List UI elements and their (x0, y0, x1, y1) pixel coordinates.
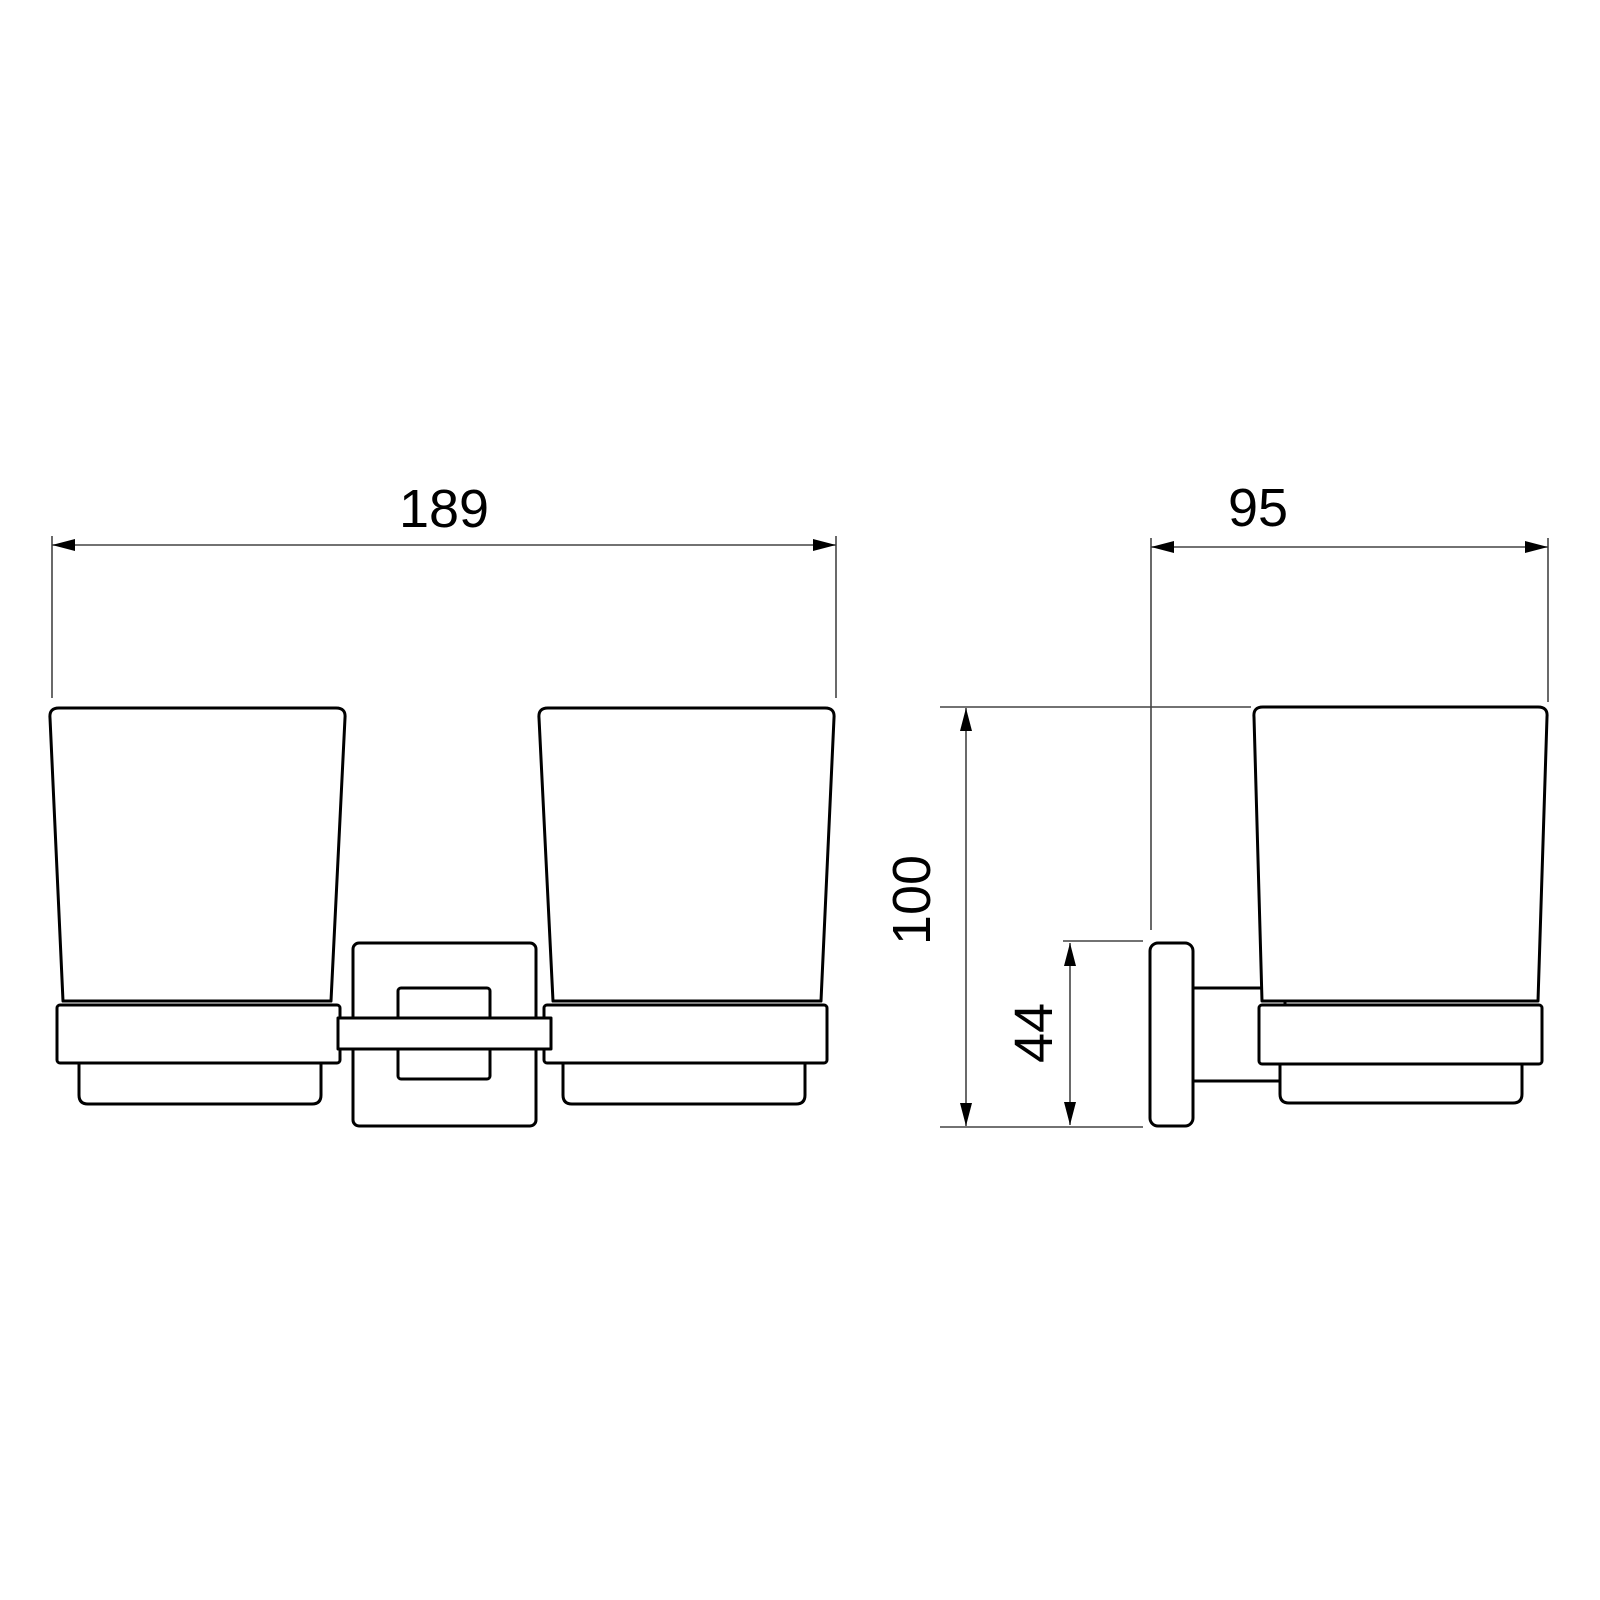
arrowhead-bottom (1064, 1102, 1076, 1125)
front-view (50, 708, 834, 1126)
front-left-holder-ring (57, 1005, 340, 1063)
front-right-glass-bottom (563, 1063, 805, 1104)
dimension-label-overall-width: 189 (399, 479, 489, 539)
arrowhead-left (1151, 541, 1174, 553)
side-holder-ring (1259, 1005, 1542, 1064)
arrowhead-top (960, 708, 972, 731)
drawing-canvas: 189 95 100 44 (0, 0, 1600, 1600)
arrowhead-right (813, 539, 836, 551)
dimension-label-depth: 95 (1228, 478, 1288, 538)
dimension-label-overall-height: 100 (882, 855, 942, 945)
dimension-overall-width: 189 (52, 479, 836, 698)
front-connecting-bar (338, 1018, 551, 1049)
dimension-bracket-height: 44 (1004, 941, 1143, 1125)
side-glass-bottom (1280, 1064, 1522, 1103)
front-right-cup (539, 708, 834, 1001)
front-right-holder-ring (544, 1005, 827, 1063)
dimension-label-bracket-height: 44 (1004, 1003, 1064, 1063)
front-left-glass-bottom (79, 1063, 321, 1104)
side-view (1150, 707, 1547, 1126)
front-left-cup (50, 708, 345, 1001)
arrowhead-bottom (960, 1103, 972, 1126)
side-cup (1254, 707, 1547, 1001)
arrowhead-top (1064, 943, 1076, 966)
arrowhead-left (52, 539, 75, 551)
side-wall-plate (1150, 943, 1193, 1126)
arrowhead-right (1525, 541, 1548, 553)
technical-drawing: 189 95 100 44 (0, 0, 1600, 1600)
